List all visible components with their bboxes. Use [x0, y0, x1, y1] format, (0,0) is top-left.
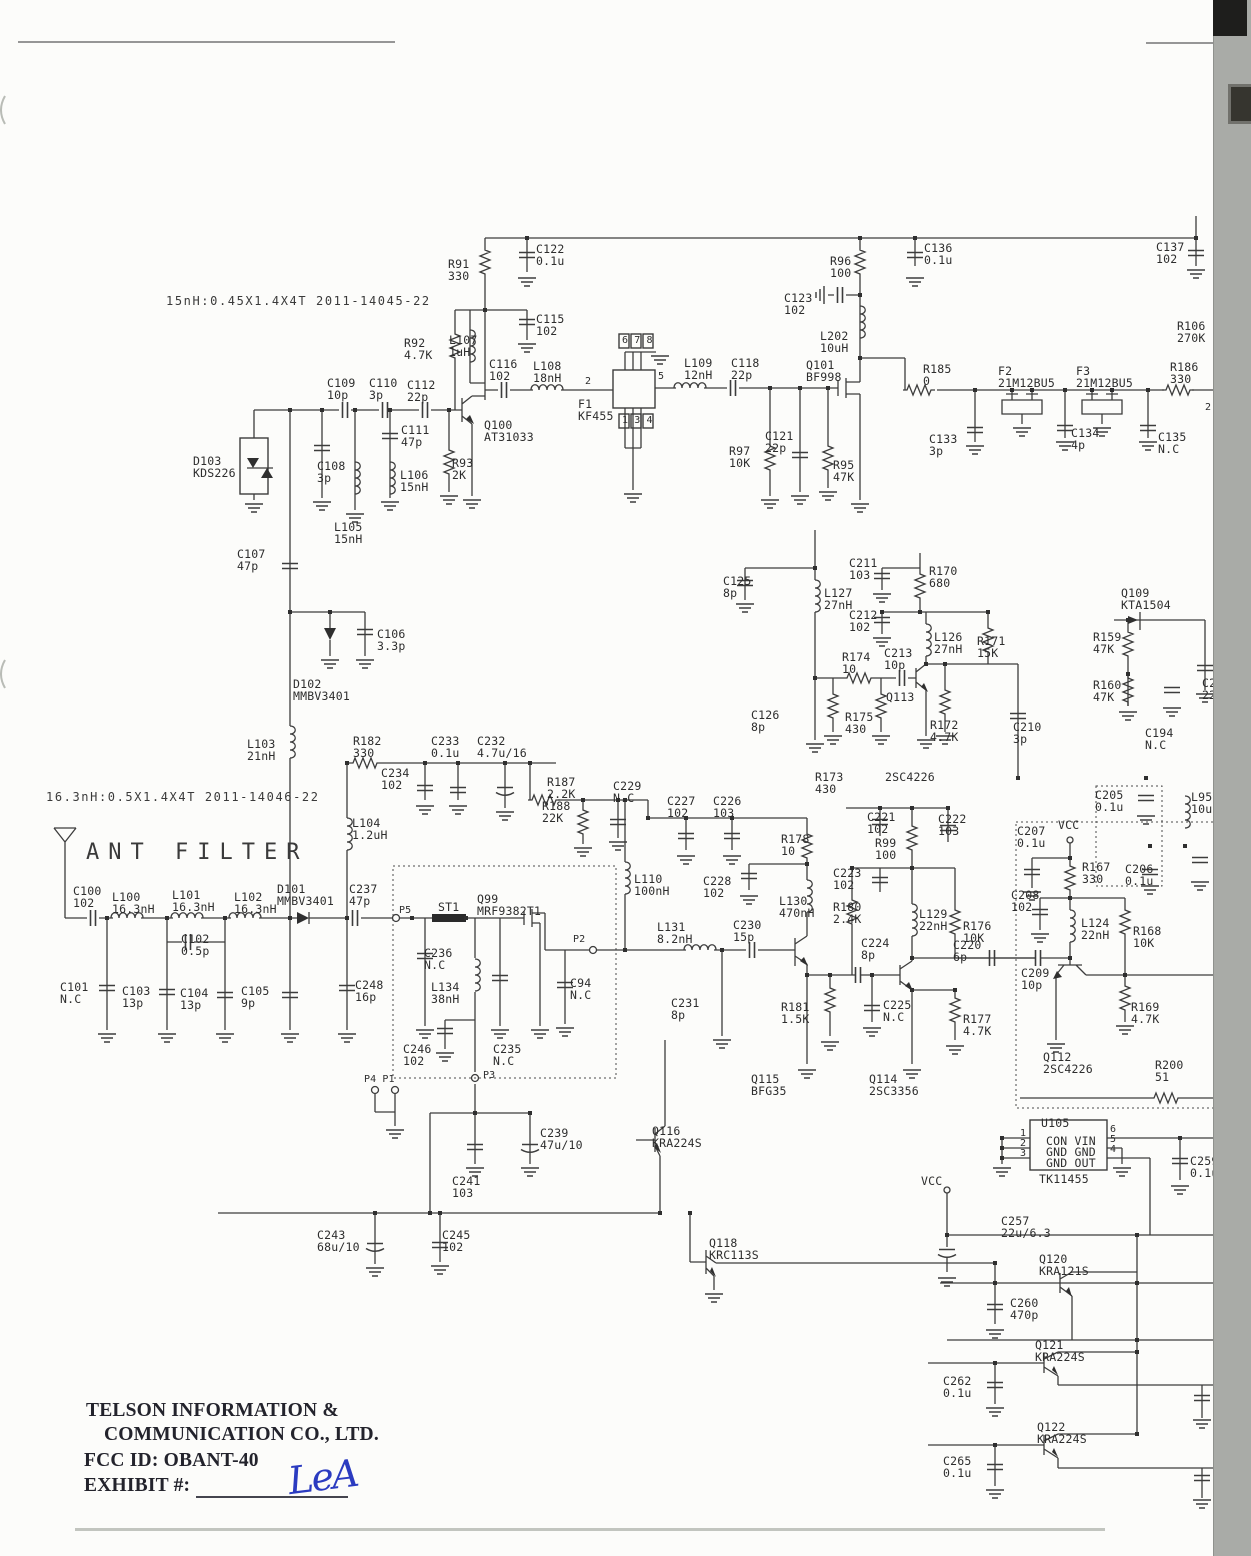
- component-label: C209 10p: [1021, 967, 1050, 991]
- component-label: C229 N.C: [613, 780, 642, 804]
- component-label: C107 47p: [237, 548, 266, 572]
- component-label: C126 8p: [751, 709, 780, 733]
- component-label: Q122 KRA224S: [1037, 1421, 1087, 1445]
- schematic-page: 15nH:0.45X1.4X4T 2011-14045-2216.3nH:0.5…: [0, 0, 1251, 1556]
- component-label: U105: [1041, 1117, 1070, 1129]
- component-label: D101 MMBV3401: [277, 883, 334, 907]
- component-label: C233 0.1u: [431, 735, 460, 759]
- component-label: R167 330: [1082, 861, 1111, 885]
- component-label: L107 1uH: [449, 334, 478, 358]
- component-label: C248 16p: [355, 979, 384, 1003]
- component-label: Q112 2SC4226: [1043, 1051, 1093, 1075]
- coil-spec-note-1: 15nH:0.45X1.4X4T 2011-14045-22: [166, 295, 431, 308]
- component-label: C223 102: [833, 867, 862, 891]
- component-label: C262 0.1u: [943, 1375, 972, 1399]
- component-label: C234 102: [381, 767, 410, 791]
- component-label: R171 15K: [977, 635, 1006, 659]
- exhibit-signature: LeA: [286, 1451, 360, 1503]
- component-label: L105 15nH: [334, 521, 363, 545]
- component-label: C133 3p: [929, 433, 958, 457]
- component-label: C123 102: [784, 292, 813, 316]
- component-label: R172 4.7K: [930, 719, 959, 743]
- component-label: C122 0.1u: [536, 243, 565, 267]
- component-label: ST1: [438, 901, 459, 913]
- component-label: C260 470p: [1010, 1297, 1039, 1321]
- component-label: D102 MMBV3401: [293, 678, 350, 702]
- component-label: L129 22nH: [919, 908, 948, 932]
- component-label: C135 N.C: [1158, 431, 1187, 455]
- component-label: C137 102: [1156, 241, 1185, 265]
- component-label: C207 0.1u: [1017, 825, 1046, 849]
- component-label: R180 2.4K: [833, 901, 862, 925]
- component-label: C257 22u/6.3: [1001, 1215, 1051, 1239]
- component-label: C235 N.C: [493, 1043, 522, 1067]
- component-label: R99 100: [875, 837, 896, 861]
- component-label: Q121 KRA224S: [1035, 1339, 1085, 1363]
- component-label: C210 3p: [1013, 721, 1042, 745]
- component-label: 6 7 8: [622, 336, 653, 347]
- labels-layer: 15nH:0.45X1.4X4T 2011-14045-2216.3nH:0.5…: [0, 0, 1251, 1556]
- component-label: C206 0.1u: [1125, 863, 1154, 887]
- component-label: TK11455: [1039, 1173, 1089, 1185]
- component-label: Q115 BFG35: [751, 1073, 787, 1097]
- component-label: Q101 BF998: [806, 359, 842, 383]
- component-label: C116 102: [489, 358, 518, 382]
- component-label: R160 47K: [1093, 679, 1122, 703]
- component-label: C109 10p: [327, 377, 356, 401]
- signal-tag-label: RX5V: [921, 547, 950, 559]
- component-label: L100 16.3nH: [112, 891, 155, 915]
- component-label: C231 8p: [671, 997, 700, 1021]
- component-label: 3: [1020, 1149, 1026, 1160]
- component-label: C225 N.C: [883, 999, 912, 1023]
- component-label: L126 27nH: [934, 631, 963, 655]
- component-label: C194 N.C: [1145, 727, 1174, 751]
- component-label: R182 330: [353, 735, 382, 759]
- component-label: R178 10: [781, 833, 810, 857]
- component-label: P4 P1: [364, 1075, 395, 1086]
- component-label: R188 22K: [542, 800, 571, 824]
- component-label: C101 N.C: [60, 981, 89, 1005]
- component-label: R200 51: [1155, 1059, 1184, 1083]
- component-label: C208 102: [1011, 889, 1040, 913]
- component-label: L202 10uH: [820, 330, 849, 354]
- component-label: L104 1.2uH: [352, 817, 388, 841]
- component-label: C243 68u/10: [317, 1229, 360, 1253]
- component-label: 4: [1110, 1145, 1116, 1156]
- component-label: C236 N.C: [424, 947, 453, 971]
- component-label: R169 4.7K: [1131, 1001, 1160, 1025]
- component-label: Q120 KRA121S: [1039, 1253, 1089, 1277]
- component-label: C239 47u/10: [540, 1127, 583, 1151]
- component-label: C237 47p: [349, 883, 378, 907]
- component-label: L103 21nH: [247, 738, 276, 762]
- component-label: R91 330: [448, 258, 469, 282]
- component-label: D103 KDS226: [193, 455, 236, 479]
- component-label: R93 2K: [452, 457, 473, 481]
- component-label: Q114 2SC3356: [869, 1073, 919, 1097]
- component-label: VCC: [1058, 819, 1079, 831]
- component-label: C106 3.3p: [377, 628, 406, 652]
- component-label: VCC: [921, 1175, 942, 1187]
- component-label: C134 4p: [1071, 427, 1100, 451]
- component-label: L110 100nH: [634, 873, 670, 897]
- component-label: C226 103: [713, 795, 742, 819]
- component-label: C227 102: [667, 795, 696, 819]
- component-label: C115 102: [536, 313, 565, 337]
- component-label: C245 102: [442, 1229, 471, 1253]
- component-label: C105 9p: [241, 985, 270, 1009]
- component-label: GND OUT: [1046, 1157, 1096, 1169]
- component-label: C224 8p: [861, 937, 890, 961]
- component-label: C246 102: [403, 1043, 432, 1067]
- component-label: F3 21M12BU5: [1076, 365, 1133, 389]
- component-label: C125 8p: [723, 575, 752, 599]
- component-label: C265 0.1u: [943, 1455, 972, 1479]
- component-label: C94 N.C: [570, 977, 591, 1001]
- component-label: C118 22p: [731, 357, 760, 381]
- component-label: F1 KF455: [578, 398, 614, 422]
- component-label: C121 22p: [765, 430, 794, 454]
- component-label: C222 103: [938, 813, 967, 837]
- signal-tag-label: RX 5V: [1156, 202, 1193, 214]
- component-label: C241 103: [452, 1175, 481, 1199]
- component-label: Q113: [886, 691, 915, 703]
- component-label: R187 2.2K: [547, 776, 576, 800]
- component-label: P3: [483, 1071, 495, 1082]
- component-label: C211 103: [849, 557, 878, 581]
- component-label: L134 38nH: [431, 981, 460, 1005]
- component-label: R106 270K: [1177, 320, 1206, 344]
- component-label: C232 4.7u/16: [477, 735, 527, 759]
- component-label: C212 102: [849, 609, 878, 633]
- signal-tag-label: TX 5V: [859, 1357, 896, 1369]
- component-label: C112 22p: [407, 379, 436, 403]
- component-label: L106 15nH: [400, 469, 429, 493]
- component-label: 2: [1205, 403, 1211, 414]
- component-label: R159 47K: [1093, 631, 1122, 655]
- component-label: L130 470nH: [779, 895, 815, 919]
- component-label: C230 15p: [733, 919, 762, 943]
- scan-artifact-corner-blob: [1213, 0, 1247, 36]
- footer-company-line2: COMMUNICATION CO., LTD.: [104, 1425, 379, 1446]
- component-label: C213 10p: [884, 647, 913, 671]
- component-label: C108 3p: [317, 460, 346, 484]
- component-label: C103 13p: [122, 985, 151, 1009]
- scan-artifact-dark-square: [1228, 84, 1251, 124]
- component-label: R177 4.7K: [963, 1013, 992, 1037]
- signal-tag-label: RX 5V: [1040, 614, 1077, 626]
- component-label: F2 21M12BU5: [998, 365, 1055, 389]
- component-label: C136 0.1u: [924, 242, 953, 266]
- component-label: Q100 AT31033: [484, 419, 534, 443]
- schematic-section-title: ANT FILTER: [86, 841, 308, 864]
- footer-company-line1: TELSON INFORMATION &: [86, 1401, 339, 1422]
- component-label: 2: [585, 377, 591, 388]
- component-label: R173 430: [815, 771, 844, 795]
- component-label: Q116 KRA224S: [652, 1125, 702, 1149]
- component-label: R97 10K: [729, 445, 750, 469]
- signal-tag-label: +7.2V: [142, 1207, 179, 1219]
- component-label: Q109 KTA1504: [1121, 587, 1171, 611]
- component-label: L131 8.2nH: [657, 921, 693, 945]
- component-label: Q118 KRC113S: [709, 1237, 759, 1261]
- component-label: C205 0.1u: [1095, 789, 1124, 813]
- component-label: R174 10: [842, 651, 871, 675]
- component-label: R95 47K: [833, 459, 854, 483]
- signal-tag-label: ANT S/W: [546, 758, 597, 770]
- signal-tag-label: RX 5V: [859, 1439, 896, 1451]
- component-label: L109 12nH: [684, 357, 713, 381]
- component-label: P5: [399, 906, 411, 917]
- component-label: R92 4.7K: [404, 337, 433, 361]
- component-label: R186 330: [1170, 361, 1199, 385]
- component-label: R168 10K: [1133, 925, 1162, 949]
- component-label: L102 16.3nH: [234, 891, 277, 915]
- component-label: C102 0.5p: [181, 933, 210, 957]
- component-label: L124 22nH: [1081, 917, 1110, 941]
- signal-tag-label: ANT S/W: [854, 1277, 905, 1289]
- footer-fcc-id: FCC ID: OBANT-40: [84, 1451, 259, 1472]
- component-label: R96 100: [830, 255, 851, 279]
- signal-tag-label: TX 5V: [962, 772, 999, 784]
- component-label: 5: [658, 372, 664, 383]
- component-label: P2: [573, 935, 585, 946]
- component-label: C111 47p: [401, 424, 430, 448]
- component-label: C100 102: [73, 885, 102, 909]
- component-label: C104 13p: [180, 987, 209, 1011]
- component-label: R185 0: [923, 363, 952, 387]
- component-label: R175 430: [845, 711, 874, 735]
- component-label: C220 6p: [953, 939, 982, 963]
- component-label: 1 3 4: [622, 416, 653, 427]
- component-label: C110 3p: [369, 377, 398, 401]
- component-label: R170 680: [929, 565, 958, 589]
- component-label: C221 102: [867, 811, 896, 835]
- coil-spec-note-2: 16.3nH:0.5X1.4X4T 2011-14046-22: [46, 791, 320, 804]
- component-label: 2SC4226: [885, 771, 935, 783]
- component-label: C228 102: [703, 875, 732, 899]
- component-label: R181 1.5K: [781, 1001, 810, 1025]
- component-label: Q99 MRF9382T1: [477, 893, 541, 917]
- component-label: L108 18nH: [533, 360, 562, 384]
- footer-exhibit: EXHIBIT #:: [84, 1476, 190, 1497]
- component-label: L101 16.3nH: [172, 889, 215, 913]
- scan-artifact-edge-strip: [1213, 0, 1251, 1556]
